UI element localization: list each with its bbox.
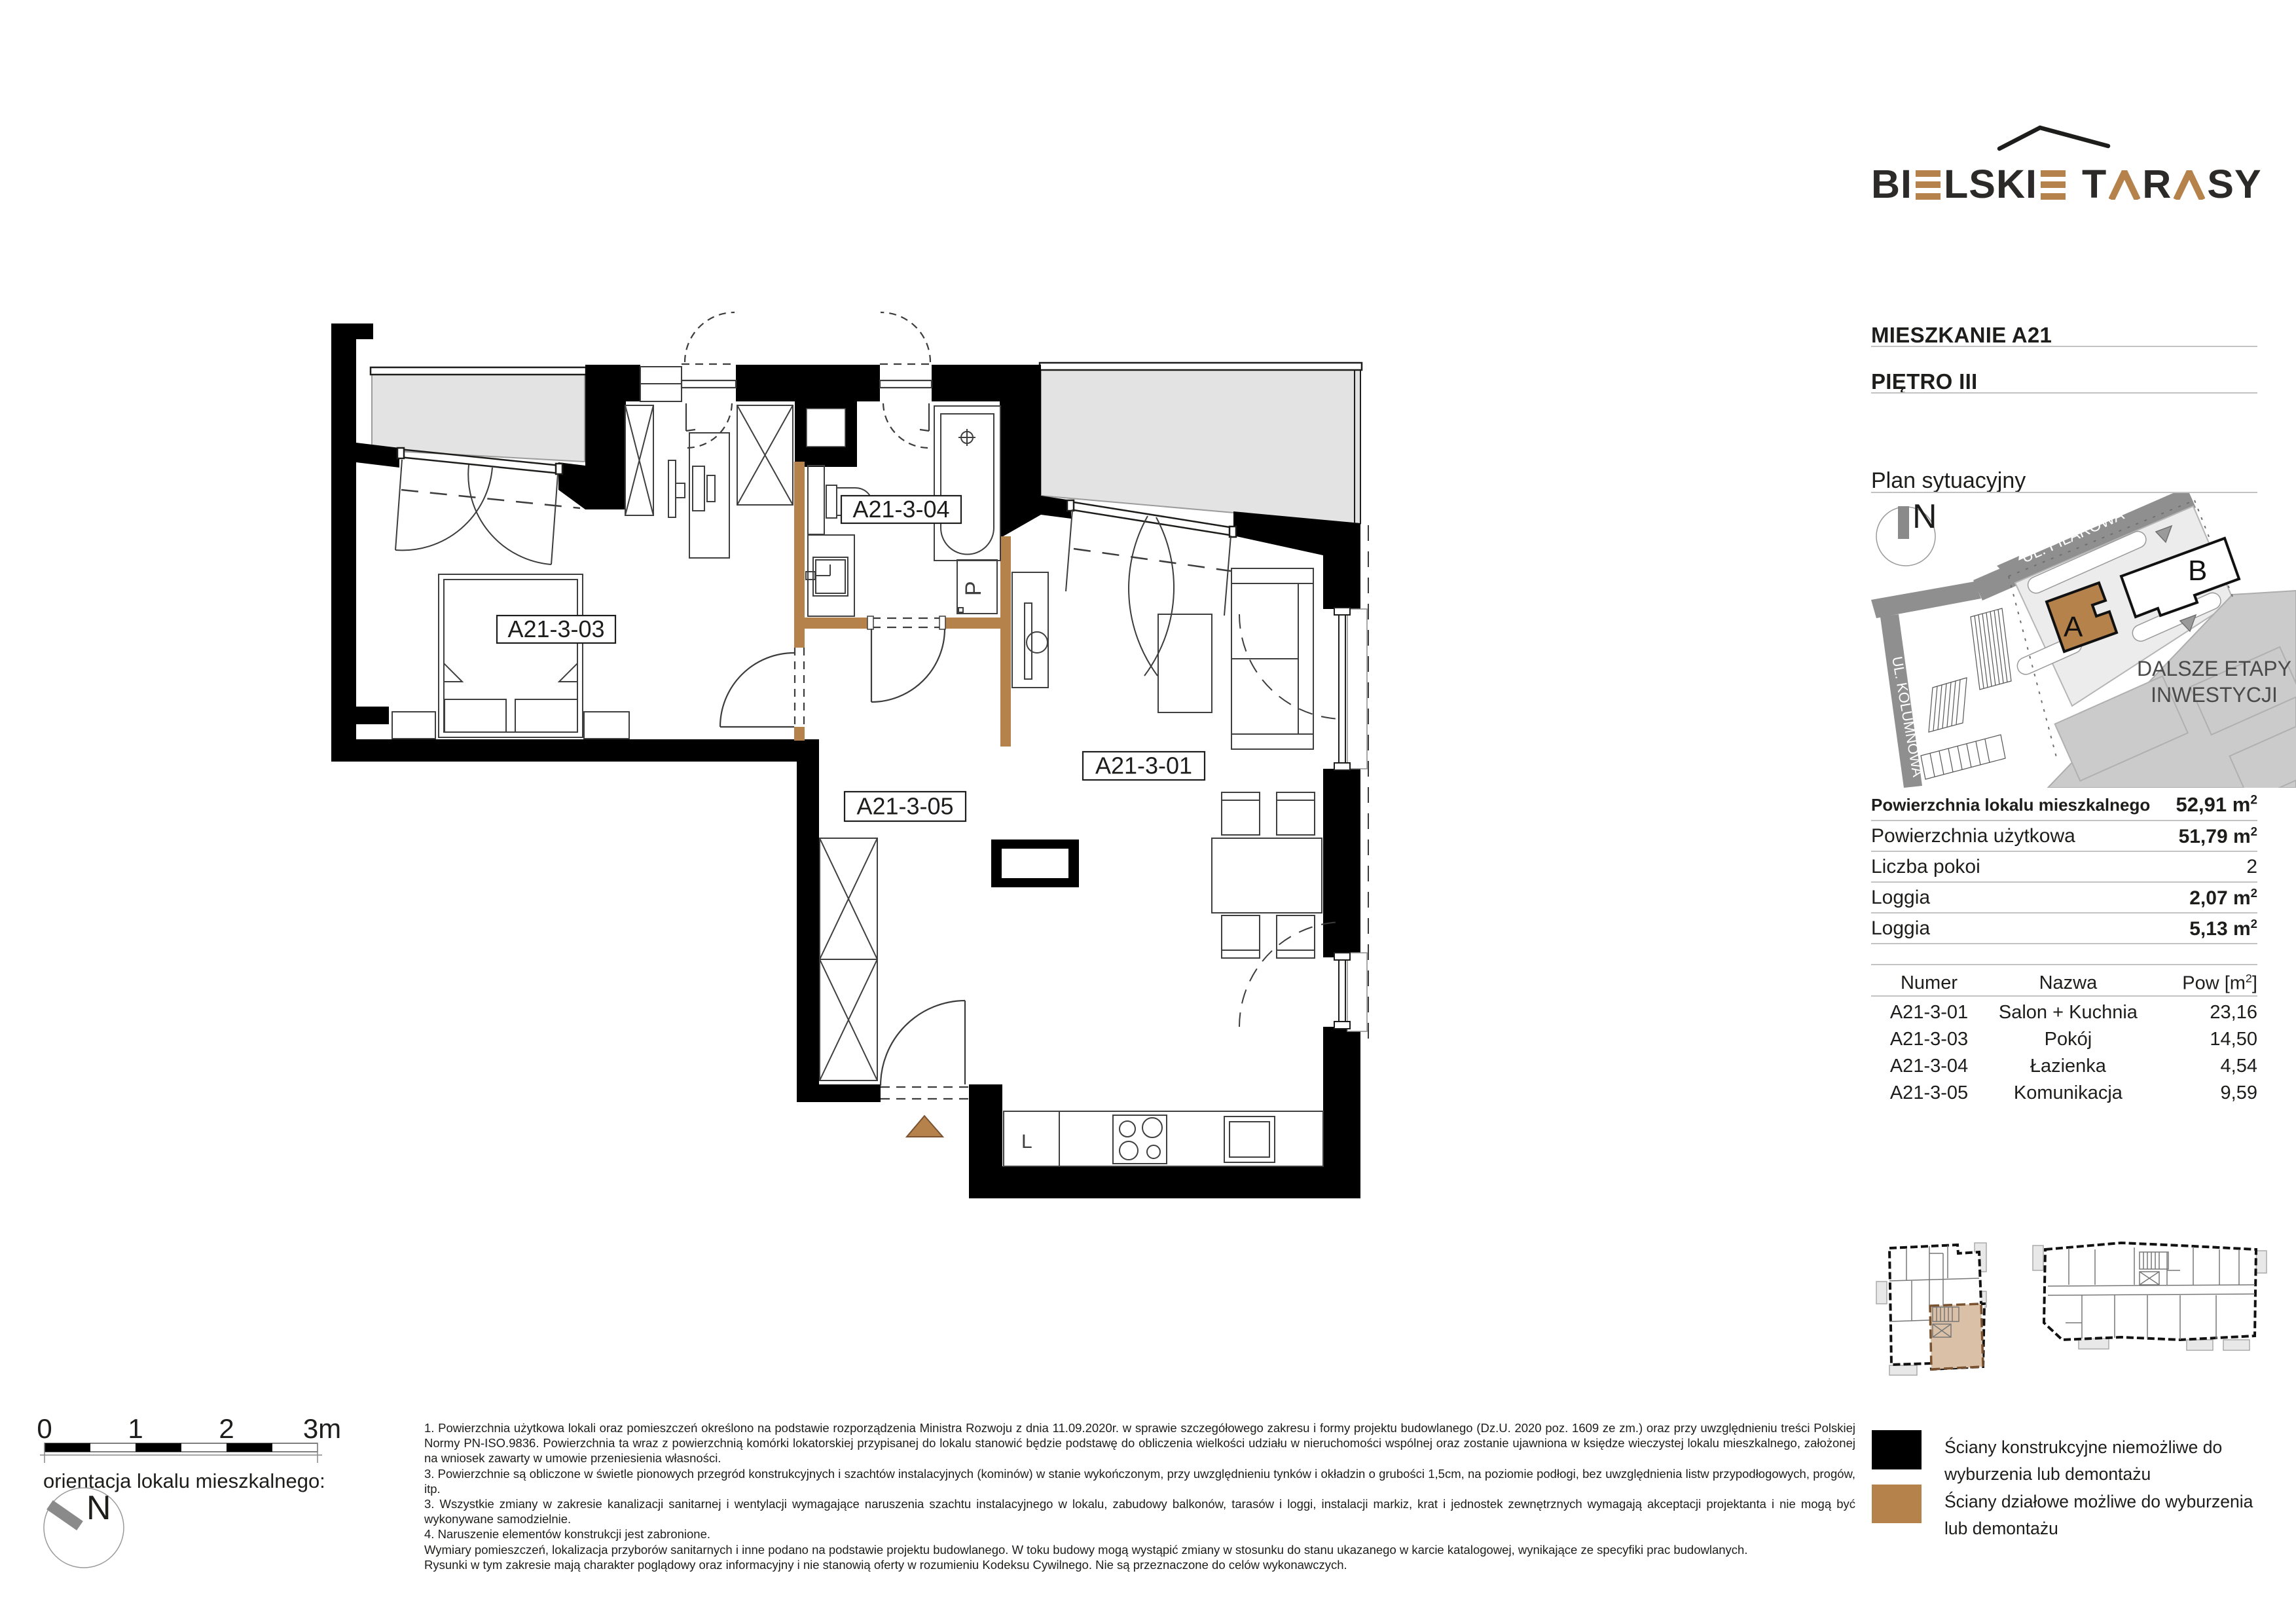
svg-text:N: N xyxy=(1912,498,1937,536)
svg-text:A21-3-05: A21-3-05 xyxy=(856,793,953,820)
svg-text:0: 0 xyxy=(37,1413,52,1444)
svg-text:A21-3-04: A21-3-04 xyxy=(852,496,949,523)
svg-text:A21-3-01: A21-3-01 xyxy=(1095,752,1192,779)
svg-text:INWESTYCJI: INWESTYCJI xyxy=(2151,683,2278,707)
svg-text:2: 2 xyxy=(219,1413,234,1444)
svg-text:3m: 3m xyxy=(303,1413,341,1444)
svg-text:N: N xyxy=(86,1489,111,1527)
svg-text:P: P xyxy=(961,581,986,596)
svg-text:1: 1 xyxy=(128,1413,143,1444)
svg-text:A: A xyxy=(2064,611,2083,643)
svg-text:DALSZE ETAPY: DALSZE ETAPY xyxy=(2137,657,2291,680)
svg-text:L: L xyxy=(1021,1131,1032,1153)
svg-text:B: B xyxy=(2188,555,2207,587)
svg-text:A21-3-03: A21-3-03 xyxy=(507,616,604,642)
